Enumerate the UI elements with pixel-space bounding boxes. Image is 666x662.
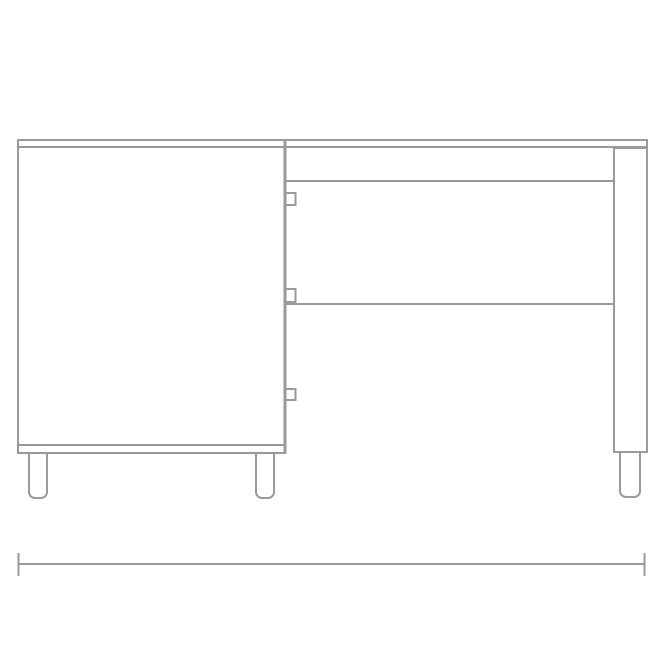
overall-width-dimension-line (19, 553, 645, 576)
desktop (18, 140, 647, 147)
right-side-panel (614, 148, 647, 452)
door-hinge-top (286, 193, 296, 205)
cabinet-left-leg (29, 454, 47, 498)
door-hinge-middle (286, 289, 296, 302)
door-hinge-bottom (286, 389, 296, 400)
cabinet-right-leg (256, 454, 274, 498)
side-panel-leg (620, 453, 640, 497)
desk-elevation-svg (0, 0, 666, 662)
desk-technical-drawing (0, 0, 666, 662)
cabinet-door-panel (20, 149, 283, 442)
drawer-front-region (287, 182, 613, 303)
